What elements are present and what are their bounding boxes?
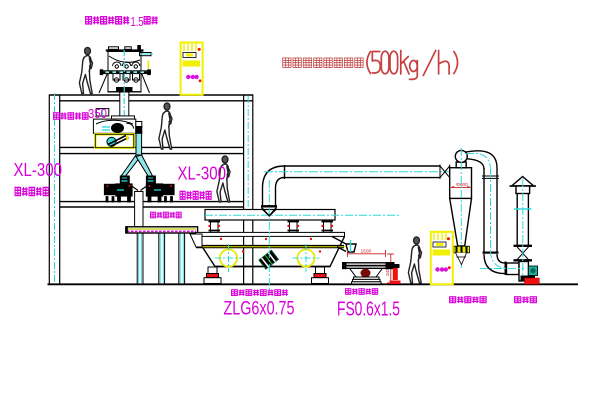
svg-text:1500: 1500: [361, 248, 372, 254]
svg-text:XL-300: XL-300: [14, 160, 63, 180]
svg-text:350: 350: [88, 106, 107, 121]
svg-text:FS0.6x1.5: FS0.6x1.5: [337, 299, 400, 321]
svg-text:Φ600: Φ600: [456, 182, 468, 188]
svg-text:ZLG6x0.75: ZLG6x0.75: [224, 299, 295, 320]
svg-text:XL-300: XL-300: [178, 164, 227, 184]
svg-text:1.5: 1.5: [131, 14, 144, 29]
